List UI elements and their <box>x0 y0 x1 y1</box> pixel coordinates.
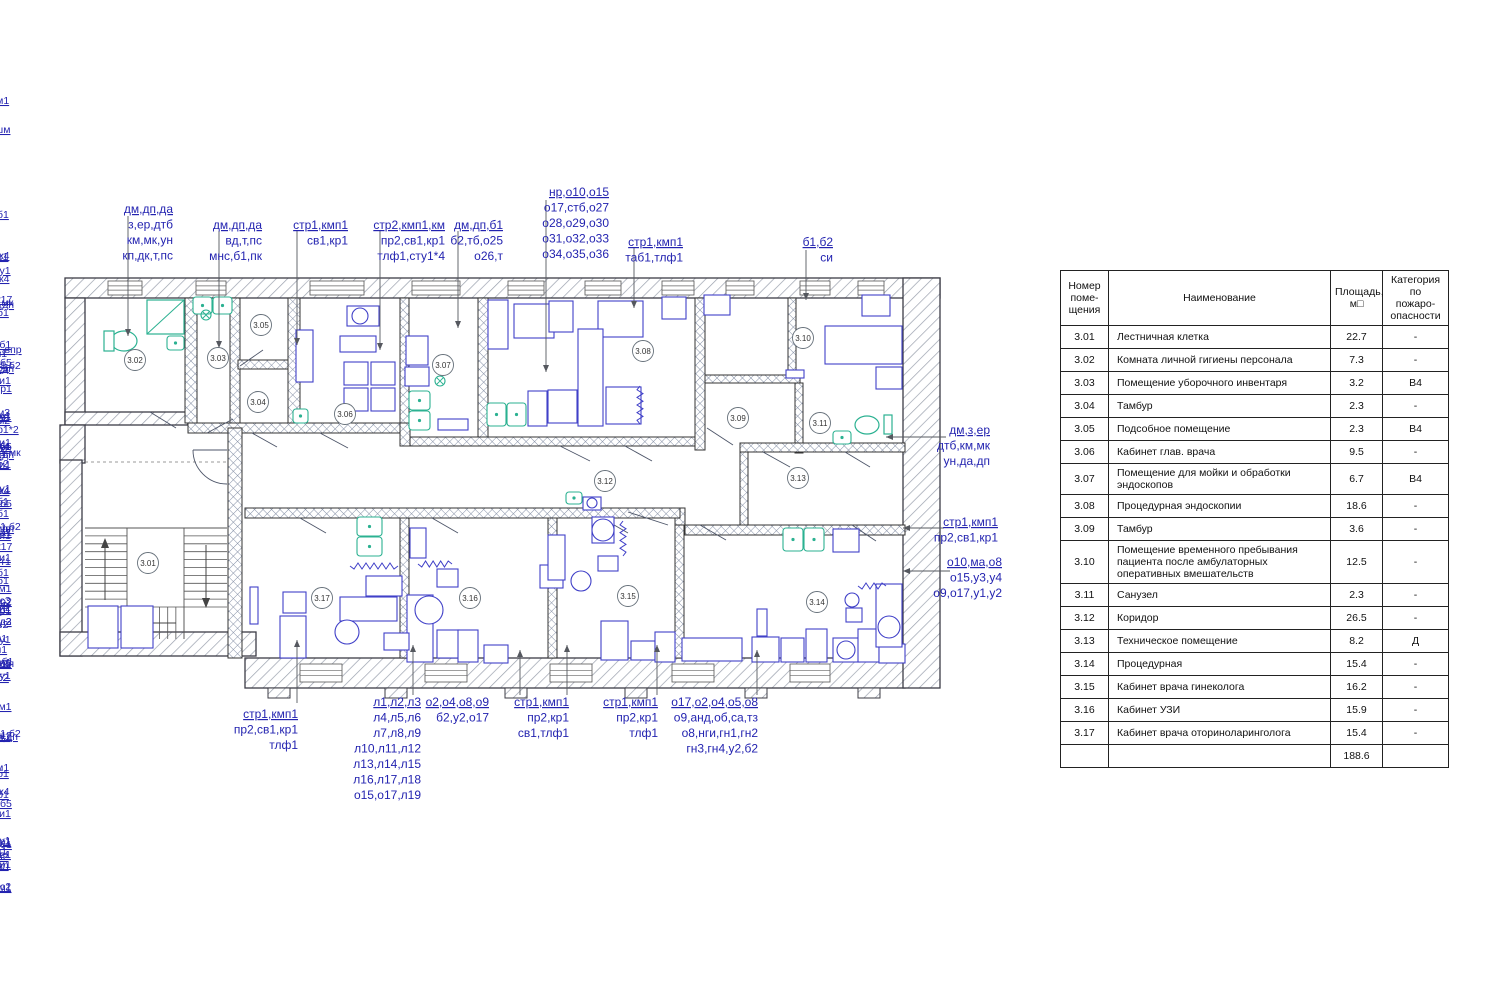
room-number-cell: 3.15 <box>1061 676 1109 699</box>
furniture <box>825 326 902 364</box>
sink-drain <box>840 436 843 439</box>
room-name-cell <box>1109 745 1331 768</box>
callout-label: о17,о2,о4,о5,о8 <box>671 695 758 709</box>
equipment-label: шк17 <box>0 730 13 742</box>
callout-label: л1,л2,л3 <box>373 695 421 709</box>
furniture <box>283 592 306 613</box>
total-row: 188.6 <box>1061 745 1449 768</box>
furniture <box>578 329 603 426</box>
equipment-label: об1 <box>0 209 9 221</box>
wall-inner <box>400 437 705 446</box>
room-area-cell: 8.2 <box>1331 630 1383 653</box>
callout-label: стр1,кмп1 <box>514 695 569 709</box>
toilet-tank <box>884 415 892 434</box>
callout-label: дм,дп,б1 <box>454 218 503 232</box>
equipment-label: ксм1 <box>0 411 12 423</box>
callout-label: л7,л8,л9 <box>373 726 421 740</box>
room-area-cell: 2.3 <box>1331 584 1383 607</box>
equipment-label: об1 <box>0 575 9 587</box>
room-area-cell: 3.6 <box>1331 518 1383 541</box>
stair-arrow-head <box>202 598 210 608</box>
room-name-cell: Помещение для мойки и обработки эндоскоп… <box>1109 464 1331 495</box>
room-number-cell <box>1061 745 1109 768</box>
equipment-label: сти1 <box>0 459 11 471</box>
room-area-cell: 12.5 <box>1331 541 1383 584</box>
room-number-cell: 3.07 <box>1061 464 1109 495</box>
equipment-label: нс1 <box>0 251 9 263</box>
room-number-cell: 3.01 <box>1061 326 1109 349</box>
equipment-label: шк4 <box>0 786 10 798</box>
furniture <box>514 304 554 338</box>
room-name-cell: Коридор <box>1109 607 1331 630</box>
furniture <box>340 597 397 621</box>
room-number: 3.03 <box>210 354 226 363</box>
wall-outer <box>60 425 85 463</box>
furniture-round <box>878 616 900 638</box>
callout-label: стр2,кмп1,км <box>373 218 445 232</box>
pilaster <box>268 688 290 698</box>
window <box>790 664 830 682</box>
wall-inner <box>695 298 705 450</box>
sink-drain <box>495 413 498 416</box>
sink-drain <box>174 341 177 344</box>
table-row: 3.13Техническое помещение8.2Д <box>1061 630 1449 653</box>
furniture-round <box>587 498 597 508</box>
callout-label: л13,л14,л15 <box>353 757 421 771</box>
table-row: 3.14Процедурная15.4- <box>1061 653 1449 676</box>
equipment-label: хм1 <box>0 762 9 774</box>
room-name-cell: Лестничная клетка <box>1109 326 1331 349</box>
column-header: Площадь, м□ <box>1331 271 1383 326</box>
furniture <box>846 608 862 622</box>
room-number: 3.08 <box>635 347 651 356</box>
furniture-round <box>335 620 359 644</box>
room-area-cell: 2.3 <box>1331 418 1383 441</box>
lamp-cross <box>437 378 443 384</box>
room-number-cell: 3.10 <box>1061 541 1109 584</box>
furniture <box>121 606 153 648</box>
furniture <box>438 419 468 430</box>
fire-category-cell: - <box>1383 441 1449 464</box>
table-row: 3.15Кабинет врача гинеколога16.2- <box>1061 676 1449 699</box>
fire-category-cell: Д <box>1383 630 1449 653</box>
equipment-label: сти1 <box>0 808 11 820</box>
toilet-tank <box>104 331 114 351</box>
equipment-label: сту1 <box>0 265 11 277</box>
room-number-cell: 3.06 <box>1061 441 1109 464</box>
fire-category-cell: - <box>1383 349 1449 372</box>
window <box>585 281 621 295</box>
furniture <box>548 535 565 580</box>
room-name-cell: Процедурная эндоскопии <box>1109 495 1331 518</box>
room-number: 3.09 <box>730 414 746 423</box>
furniture <box>366 576 402 596</box>
table-row: 3.11Санузел2.3- <box>1061 584 1449 607</box>
table-row: 3.04Тамбур2.3- <box>1061 395 1449 418</box>
window <box>108 281 142 295</box>
room-number-cell: 3.03 <box>1061 372 1109 395</box>
sink-drain <box>791 538 794 541</box>
furniture-round <box>352 308 368 324</box>
leader-arrow <box>886 434 893 440</box>
room-number-cell: 3.09 <box>1061 518 1109 541</box>
room-number-cell: 3.05 <box>1061 418 1109 441</box>
room-number-cell: 3.08 <box>1061 495 1109 518</box>
wall-inner <box>740 452 748 534</box>
wall-inner <box>188 423 410 433</box>
furniture <box>280 616 306 658</box>
wall-outer <box>903 278 940 688</box>
room-number: 3.02 <box>127 356 143 365</box>
fire-category-cell: В4 <box>1383 418 1449 441</box>
room-number: 3.06 <box>337 410 353 419</box>
sink-drain <box>418 399 421 402</box>
room-name-cell: Тамбур <box>1109 395 1331 418</box>
room-name-cell: Кабинет глав. врача <box>1109 441 1331 464</box>
window <box>300 664 342 682</box>
furniture <box>781 638 804 662</box>
room-area-cell: 188.6 <box>1331 745 1383 768</box>
room-number-cell: 3.11 <box>1061 584 1109 607</box>
curtain-zigzag <box>418 561 452 567</box>
table-row: 3.09Тамбур3.6- <box>1061 518 1449 541</box>
room-area-cell: 16.2 <box>1331 676 1383 699</box>
callout-label: дм,дп,да <box>213 218 262 232</box>
room-number-cell: 3.12 <box>1061 607 1109 630</box>
table-row: 3.08Процедурная эндоскопии18.6- <box>1061 495 1449 518</box>
door-leaf <box>300 518 326 533</box>
fire-category-cell: - <box>1383 699 1449 722</box>
leader-arrow <box>455 321 461 328</box>
equipment-label: лор1 <box>0 383 12 395</box>
callout-label: о10,ма,о8 <box>947 555 1002 569</box>
room-name-cell: Техническое помещение <box>1109 630 1331 653</box>
callout-label: б2,у2,о17 <box>436 711 489 725</box>
equipment-label: св2 <box>0 619 8 631</box>
leader-arrow <box>517 650 523 657</box>
callout-label: нр,о10,о15 <box>549 185 609 199</box>
window <box>800 281 830 295</box>
room-area-cell: 6.7 <box>1331 464 1383 495</box>
door-leaf <box>560 446 590 461</box>
room-area-cell: 18.6 <box>1331 495 1383 518</box>
callout-label: б2,тб,о25 <box>450 234 503 248</box>
callout-label: пр2,св1,кр1 <box>934 531 998 545</box>
callout-label: з,ер,дтб <box>128 218 173 232</box>
callout-label: л16,л17,л18 <box>353 773 421 787</box>
room-name-cell: Кабинет врача гинеколога <box>1109 676 1331 699</box>
furniture <box>405 367 429 386</box>
callout-label: св1,кр1 <box>307 234 348 248</box>
furniture <box>340 336 376 352</box>
room-area-cell: 15.4 <box>1331 653 1383 676</box>
sink-drain <box>418 419 421 422</box>
wall-inner <box>245 508 680 518</box>
equipment-label: таб1 <box>0 604 11 616</box>
fire-category-cell: - <box>1383 395 1449 418</box>
sink-drain <box>368 545 371 548</box>
room-number: 3.12 <box>597 477 613 486</box>
door-leaf <box>252 433 277 447</box>
furniture <box>371 388 395 411</box>
callout-label: л4,л5,л6 <box>373 711 421 725</box>
fire-category-cell: - <box>1383 518 1449 541</box>
callout-label: пр2,кр1 <box>616 711 658 725</box>
furniture <box>437 630 459 658</box>
callout-label: тлф1,сту1*4 <box>377 249 445 263</box>
equipment-label: узи1 <box>0 437 11 449</box>
callout-label: км,мк,ун <box>127 233 173 247</box>
furniture <box>437 569 458 587</box>
furniture <box>371 362 395 385</box>
table-row: 3.17Кабинет врача оториноларинголога15.4… <box>1061 722 1449 745</box>
callout-label: л10,л11,л12 <box>354 742 421 756</box>
callout-label: о8,нги,гн1,гн2 <box>682 726 759 740</box>
callout-label: о15,о17,л19 <box>354 788 421 802</box>
room-number: 3.01 <box>140 559 156 568</box>
header-row: Номер поме- щенияНаименованиеПлощадь, м□… <box>1061 271 1449 326</box>
room-area-cell: 22.7 <box>1331 326 1383 349</box>
furniture <box>757 609 767 636</box>
leader-arrow <box>564 645 570 652</box>
leader-arrow <box>543 365 549 372</box>
callout-label: св1,тлф1 <box>518 726 569 740</box>
furniture <box>704 295 730 315</box>
column-header: Категория по пожаро- опасности <box>1383 271 1449 326</box>
table-row: 3.05Подсобное помещение2.3В4 <box>1061 418 1449 441</box>
room-number: 3.11 <box>813 419 829 428</box>
room-name-cell: Санузел <box>1109 584 1331 607</box>
fire-category-cell: - <box>1383 676 1449 699</box>
callout-label: о34,о35,о36 <box>542 247 609 261</box>
callout-label: о26,т <box>474 249 503 263</box>
column-header: Наименование <box>1109 271 1331 326</box>
column-header: Номер поме- щения <box>1061 271 1109 326</box>
room-name-cell: Процедурная <box>1109 653 1331 676</box>
furniture <box>862 295 890 316</box>
furniture <box>548 390 577 423</box>
window <box>672 664 714 682</box>
furniture <box>833 529 859 552</box>
room-area-cell: 26.5 <box>1331 607 1383 630</box>
room-number: 3.10 <box>795 334 811 343</box>
window <box>508 281 544 295</box>
room-number-cell: 3.16 <box>1061 699 1109 722</box>
fire-category-cell: - <box>1383 653 1449 676</box>
sink-drain <box>299 414 302 417</box>
furniture <box>528 391 547 426</box>
furniture <box>88 606 118 648</box>
callout-label: стр1,кмп1 <box>628 235 683 249</box>
equipment-label: дкр1 <box>0 836 11 848</box>
door-leaf <box>845 452 870 467</box>
fire-category-cell: - <box>1383 326 1449 349</box>
leader-arrow <box>216 341 222 348</box>
callout-label: тлф1 <box>269 738 298 752</box>
sink-drain <box>515 413 518 416</box>
room-number-cell: 3.14 <box>1061 653 1109 676</box>
room-number: 3.15 <box>620 592 636 601</box>
leader-arrow <box>377 343 383 350</box>
room-number: 3.04 <box>250 398 266 407</box>
room-number-cell: 3.13 <box>1061 630 1109 653</box>
room-area-cell: 7.3 <box>1331 349 1383 372</box>
room-schedule-body: 3.01Лестничная клетка22.7-3.02Комната ли… <box>1061 326 1449 768</box>
room-name-cell: Кабинет врача оториноларинголога <box>1109 722 1331 745</box>
equipment-label: хнс2 <box>0 881 11 893</box>
sink-drain <box>221 304 224 307</box>
window <box>662 281 694 295</box>
room-schedule-header: Номер поме- щенияНаименованиеПлощадь, м□… <box>1061 271 1449 326</box>
stair-arrow-head <box>101 538 109 548</box>
equipment-label: сту1 <box>0 483 11 495</box>
fire-category-cell: В4 <box>1383 372 1449 395</box>
equipment-label: сту1 <box>0 634 11 646</box>
fire-category-cell <box>1383 745 1449 768</box>
callout-label: мнс,б1,пк <box>209 249 263 263</box>
room-name-cell: Помещение уборочного инвентаря <box>1109 372 1331 395</box>
furniture <box>601 621 628 660</box>
callout-label: ун,да,дп <box>944 454 990 468</box>
room-number: 3.05 <box>253 321 269 330</box>
room-name-cell: Подсобное помещение <box>1109 418 1331 441</box>
window <box>550 664 592 682</box>
furniture <box>488 300 508 349</box>
room-name-cell: Тамбур <box>1109 518 1331 541</box>
window <box>858 281 884 295</box>
callout-label: о17,стб,о27 <box>544 201 609 215</box>
wall-inner <box>228 428 242 658</box>
callout-label: о2,о4,о8,о9 <box>426 695 490 709</box>
furniture <box>484 645 508 663</box>
callout-label: кп,дк,т,пс <box>122 249 173 263</box>
callout-label: стр1,кмп1 <box>603 695 658 709</box>
furniture <box>876 367 902 389</box>
room-number: 3.13 <box>790 474 806 483</box>
room-schedule-table: Номер поме- щенияНаименованиеПлощадь, м□… <box>1060 270 1449 768</box>
fire-category-cell: - <box>1383 541 1449 584</box>
equipment-label: сшм <box>0 124 10 136</box>
callout-label: о9,анд,об,са,тз <box>674 711 759 725</box>
callout-label: таб1,тлф1 <box>625 251 683 265</box>
equipment-label: об1 <box>0 508 9 520</box>
equipment-label: сти1 <box>0 657 11 669</box>
callout-label: о28,о29,о30 <box>542 216 609 230</box>
door-leaf <box>432 518 458 533</box>
furniture <box>786 370 804 378</box>
fire-category-cell: - <box>1383 722 1449 745</box>
callout-label: си <box>820 251 833 265</box>
equipment-label: ксм1 <box>0 701 12 713</box>
fire-category-cell: - <box>1383 495 1449 518</box>
sink-drain <box>368 525 371 528</box>
furniture <box>682 638 742 661</box>
fire-category-cell: - <box>1383 607 1449 630</box>
room-number: 3.07 <box>435 361 451 370</box>
room-number: 3.17 <box>314 594 330 603</box>
callout-label: дм,дп,да <box>124 202 173 216</box>
callout-label: дтб,км,мк <box>937 439 991 453</box>
callout-label: стр1,кмп1 <box>293 218 348 232</box>
furniture <box>655 632 675 662</box>
callout-label: пр2,св1,кр1 <box>381 234 445 248</box>
sink-drain <box>201 304 204 307</box>
room-name-cell: Кабинет УЗИ <box>1109 699 1331 722</box>
furniture <box>296 330 313 382</box>
furniture <box>344 362 368 385</box>
table-row: 3.06Кабинет глав. врача9.5- <box>1061 441 1449 464</box>
equipment-label: шк17 <box>0 541 13 553</box>
furniture-round <box>592 519 614 541</box>
furniture <box>752 637 779 662</box>
furniture <box>631 641 655 660</box>
door-leaf <box>763 452 790 467</box>
callout-label: гн3,гн4,у2,б2 <box>686 742 758 756</box>
table-row: 3.12Коридор26.5- <box>1061 607 1449 630</box>
callout-label: о15,у3,у4 <box>950 571 1002 585</box>
equipment-label: да,мк <box>0 297 14 309</box>
callout-label: б1,б2 <box>803 235 834 249</box>
door-leaf <box>625 446 652 461</box>
furniture <box>250 587 258 624</box>
callout-label: пр2,св1,кр1 <box>234 723 298 737</box>
callout-label: пр2,кр1 <box>527 711 569 725</box>
wall-outer <box>65 298 85 425</box>
furniture <box>458 630 478 662</box>
window <box>412 281 460 295</box>
callout-label: о9,о17,у1,у2 <box>933 586 1002 600</box>
furniture <box>384 633 409 650</box>
furniture <box>598 556 618 571</box>
callout-label: стр1,кмп1 <box>943 515 998 529</box>
wall-outer <box>60 460 82 656</box>
room-area-cell: 15.4 <box>1331 722 1383 745</box>
furniture <box>410 528 426 558</box>
room-number-cell: 3.17 <box>1061 722 1109 745</box>
room-area-cell: 2.3 <box>1331 395 1383 418</box>
wall-inner <box>185 298 197 423</box>
equipment-label: сти1 <box>0 859 11 871</box>
furniture <box>806 629 827 662</box>
wall-inner <box>238 360 290 369</box>
curtain-zigzag <box>350 563 398 569</box>
labels-layer: дм,дп,даз,ер,дтбкм,мк,ункп,дк,т,псдм,дп,… <box>0 95 1002 894</box>
furniture-round <box>845 593 859 607</box>
furniture <box>662 297 686 319</box>
toilet-bowl <box>111 331 137 351</box>
floor-plan-sheet: { "plan": { "colors": {"label":"#2323b0"… <box>0 0 1500 1000</box>
curtain-zigzag <box>620 521 626 556</box>
pilaster <box>858 688 880 698</box>
equipment-label: об2 <box>0 672 9 684</box>
table-row: 3.07Помещение для мойки и обработки эндо… <box>1061 464 1449 495</box>
wall-inner <box>740 443 905 452</box>
room-name-cell: Комната личной гигиены персонала <box>1109 349 1331 372</box>
room-number-cell: 3.02 <box>1061 349 1109 372</box>
window <box>196 281 226 295</box>
window <box>310 281 364 295</box>
table-row: 3.03Помещение уборочного инвентаря3.2В4 <box>1061 372 1449 395</box>
table-row: 3.01Лестничная клетка22.7- <box>1061 326 1449 349</box>
equipment-label: рм/в <box>0 523 11 535</box>
equipment-label: см1 <box>0 95 9 107</box>
furniture <box>406 336 428 365</box>
callout-label: вд,т,пс <box>225 234 262 248</box>
window <box>425 664 467 682</box>
toilet-bowl <box>855 416 879 434</box>
room-name-cell: Помещение временного пребывания пациента… <box>1109 541 1331 584</box>
room-area-cell: 9.5 <box>1331 441 1383 464</box>
